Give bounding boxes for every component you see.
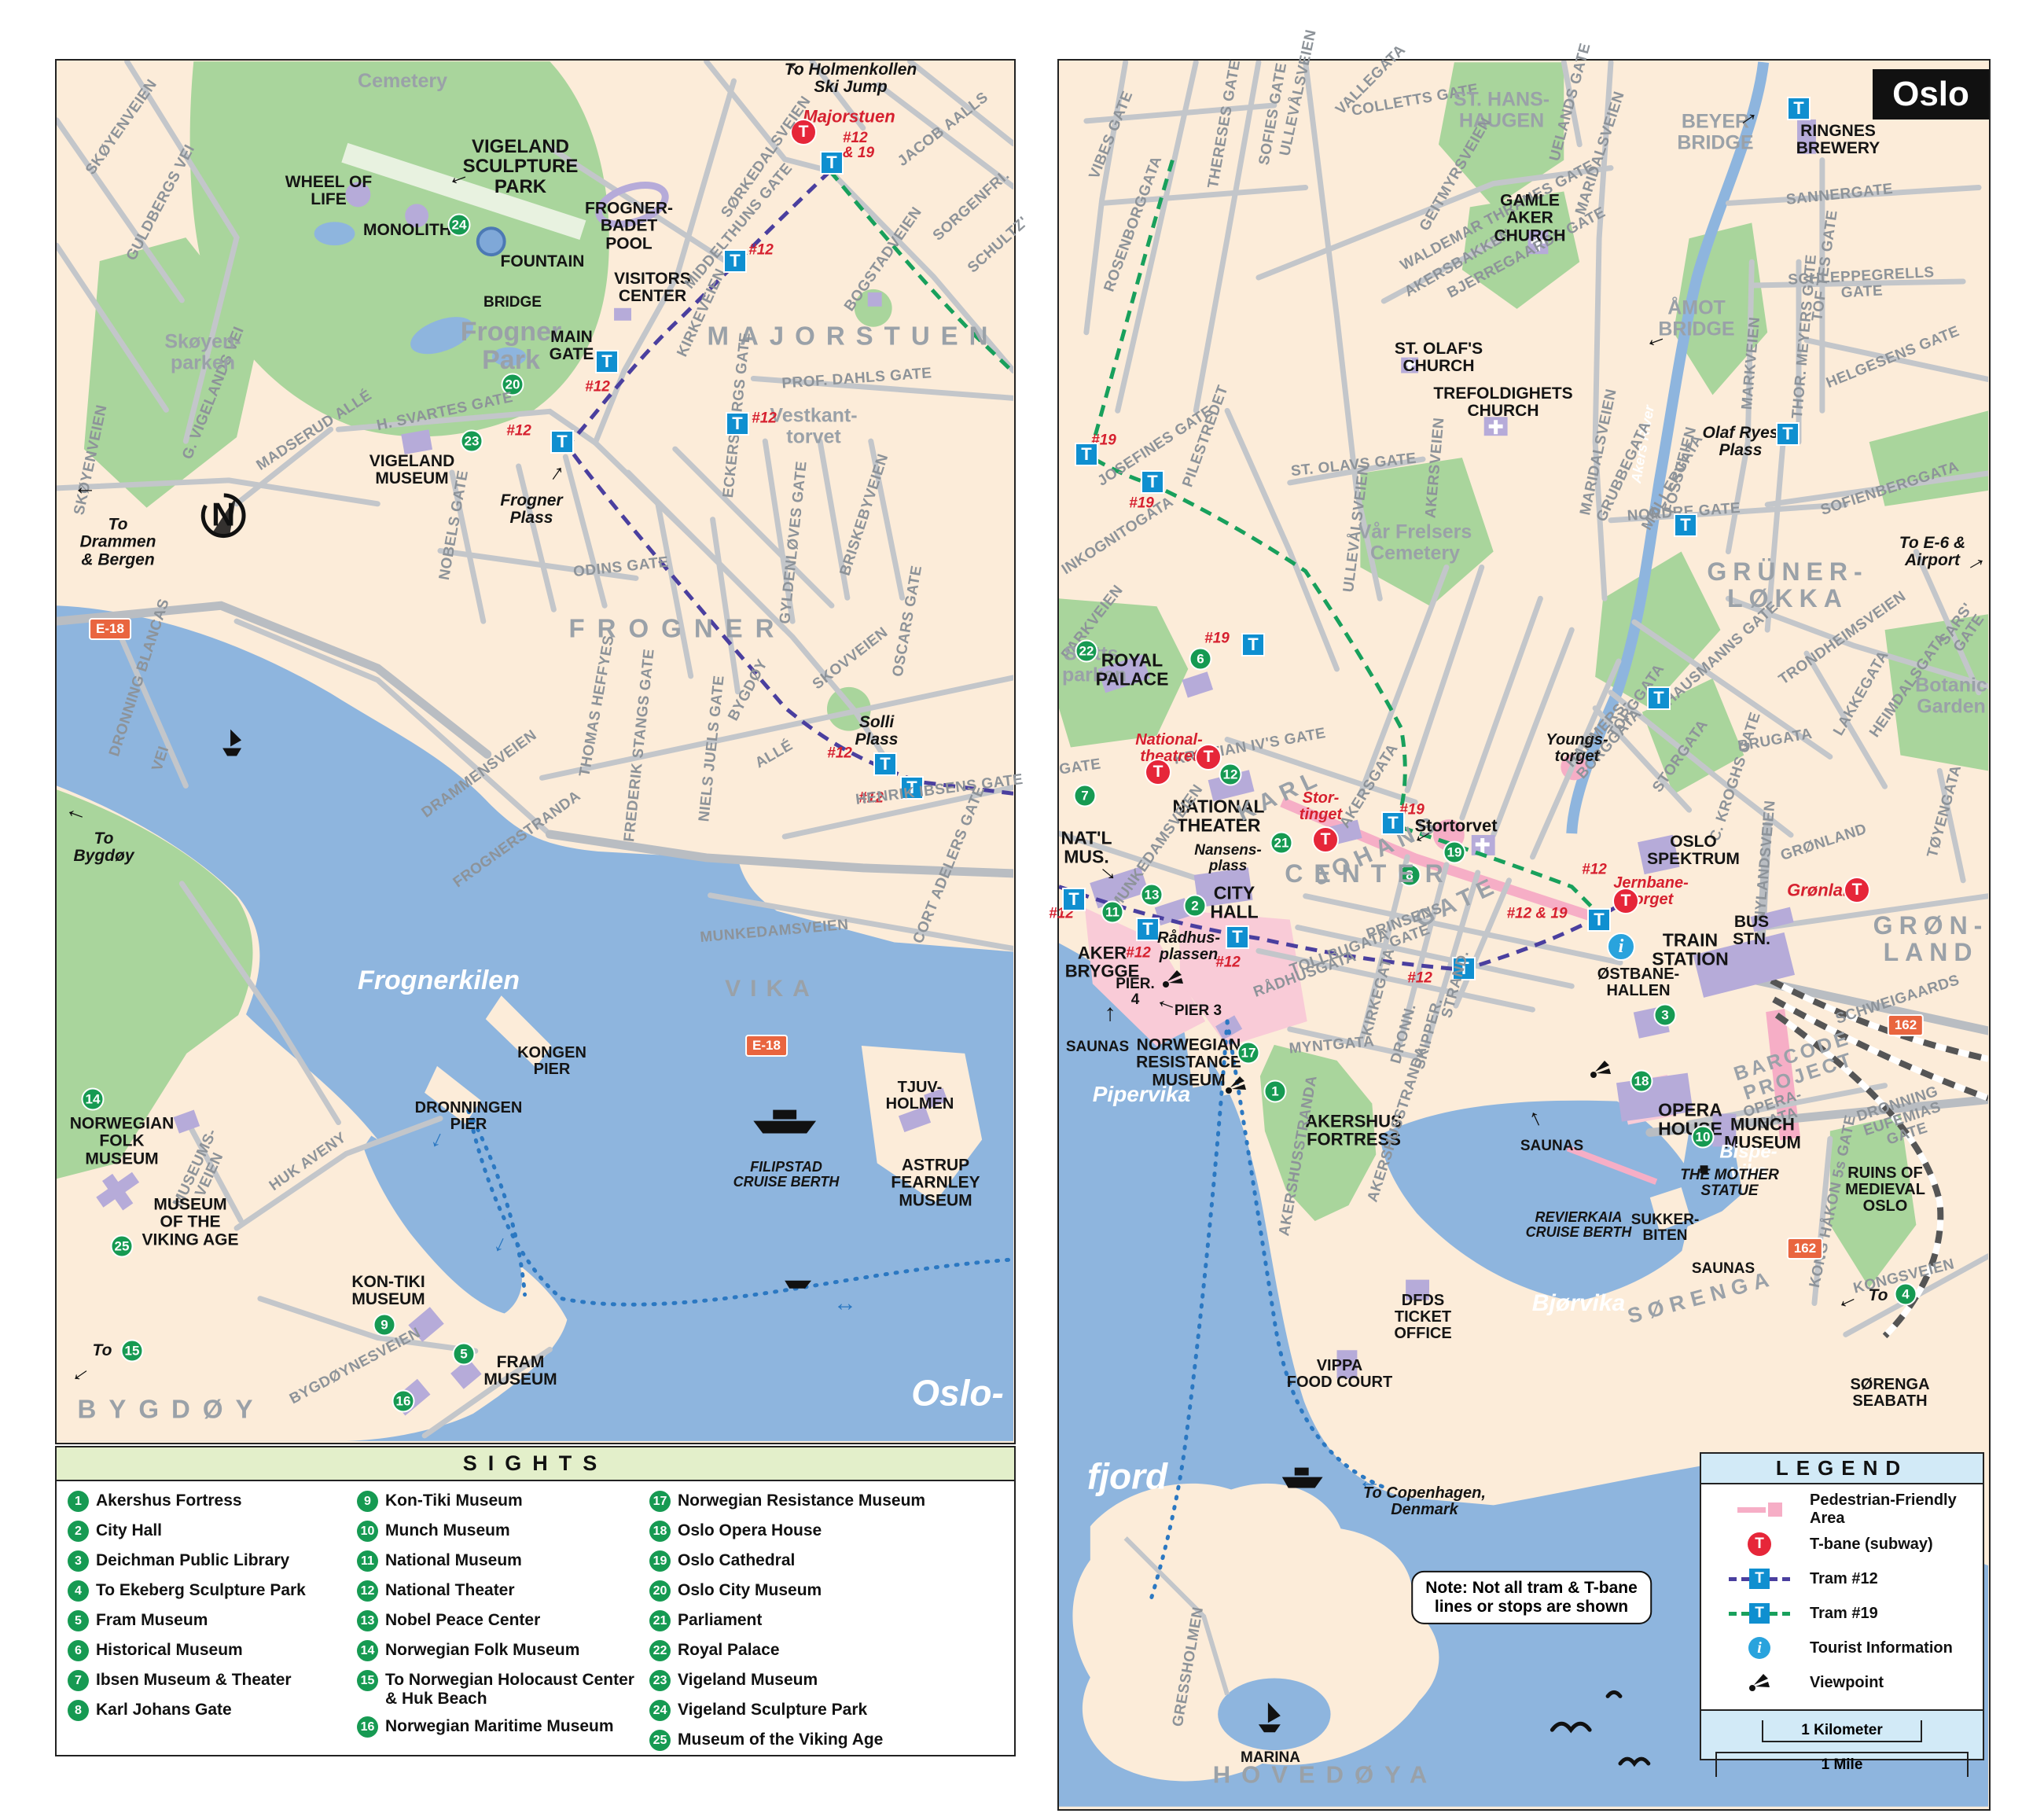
left-map-panel: N — [55, 59, 1016, 1444]
sight-number-badge: 4 — [68, 1580, 89, 1602]
sight-label: Royal Palace — [678, 1640, 780, 1660]
sight-row: 6 Historical Museum — [68, 1640, 357, 1661]
sight-row: 16 Norwegian Maritime Museum — [357, 1716, 649, 1738]
sight-label: Vigeland Museum — [678, 1670, 818, 1690]
sight-row: 2 City Hall — [68, 1521, 357, 1542]
sights-header: SIGHTS — [57, 1447, 1014, 1481]
sight-label: City Hall — [96, 1521, 162, 1540]
legend-header: LEGEND — [1701, 1454, 1983, 1484]
legend-icon: T — [1723, 1532, 1796, 1556]
sight-label: Ibsen Museum & Theater — [96, 1670, 292, 1690]
scale-kilometer: 1 Kilometer — [1762, 1720, 1922, 1742]
sight-label: Parliament — [678, 1610, 762, 1630]
sight-number-badge: 18 — [649, 1521, 671, 1542]
sight-number-badge: 21 — [649, 1610, 671, 1631]
sights-column-3: 17 Norwegian Resistance Museum 18 Oslo O… — [649, 1491, 1003, 1751]
sight-number-badge: 1 — [68, 1491, 89, 1512]
legend-box: LEGEND Pedestrian-Friendly Area T T-bane… — [1700, 1452, 1984, 1760]
sight-label: Oslo City Museum — [678, 1580, 822, 1600]
sight-row: 5 Fram Museum — [68, 1610, 357, 1631]
sight-row: 19 Oslo Cathedral — [649, 1550, 1003, 1572]
sight-row: 24 Vigeland Sculpture Park — [649, 1700, 1003, 1721]
legend-row: Viewpoint — [1701, 1665, 1983, 1700]
sight-row: 1 Akershus Fortress — [68, 1491, 357, 1512]
sight-row: 22 Royal Palace — [649, 1640, 1003, 1661]
sight-number-badge: 12 — [357, 1580, 378, 1602]
sight-label: Akershus Fortress — [96, 1491, 242, 1510]
oslo-tourist-map: N — [0, 0, 2044, 1817]
sight-number-badge: 3 — [68, 1550, 89, 1572]
sight-row: 8 Karl Johans Gate — [68, 1700, 357, 1721]
legend-icon: i — [1723, 1637, 1796, 1659]
sight-number-badge: 6 — [68, 1640, 89, 1661]
sight-number-badge: 25 — [649, 1730, 671, 1751]
sight-number-badge: 10 — [357, 1521, 378, 1542]
sight-number-badge: 2 — [68, 1521, 89, 1542]
sight-label: Munch Museum — [385, 1521, 510, 1540]
sight-row: 11 National Museum — [357, 1550, 649, 1572]
sight-number-badge: 11 — [357, 1550, 378, 1572]
sight-row: 17 Norwegian Resistance Museum — [649, 1491, 1003, 1512]
legend-row: T T-bane (subway) — [1701, 1527, 1983, 1561]
sight-row: 25 Museum of the Viking Age — [649, 1730, 1003, 1751]
legend-row: Pedestrian-Friendly Area — [1701, 1492, 1983, 1527]
sight-label: National Theater — [385, 1580, 515, 1600]
sights-column-2: 9 Kon-Tiki Museum 10 Munch Museum 11 Nat… — [357, 1491, 649, 1751]
sight-label: Nobel Peace Center — [385, 1610, 540, 1630]
sight-label: Oslo Opera House — [678, 1521, 822, 1540]
sight-label: Fram Museum — [96, 1610, 208, 1630]
sight-label: National Museum — [385, 1550, 522, 1570]
sights-column-1: 1 Akershus Fortress 2 City Hall 3 Deichm… — [68, 1491, 357, 1751]
sight-number-badge: 15 — [357, 1670, 378, 1691]
sight-label: Karl Johans Gate — [96, 1700, 232, 1720]
sight-number-badge: 23 — [649, 1670, 671, 1691]
sight-row: 21 Parliament — [649, 1610, 1003, 1631]
legend-icon: T — [1723, 1603, 1796, 1624]
map-title-text: Oslo — [1892, 75, 1969, 114]
scale-mile: 1 Mile — [1715, 1752, 1969, 1777]
legend-icon — [1723, 1672, 1796, 1693]
sight-number-badge: 20 — [649, 1580, 671, 1602]
legend-scale: 1 Kilometer 1 Mile — [1701, 1711, 1983, 1777]
sight-label: To Ekeberg Sculpture Park — [96, 1580, 306, 1600]
sight-number-badge: 14 — [357, 1640, 378, 1661]
sight-row: 20 Oslo City Museum — [649, 1580, 1003, 1602]
legend-row: T Tram #12 — [1701, 1561, 1983, 1596]
sight-label: Norwegian Folk Museum — [385, 1640, 579, 1660]
legend-label: Pedestrian-Friendly Area — [1810, 1491, 1983, 1528]
sight-number-badge: 19 — [649, 1550, 671, 1572]
left-map-graphics: N — [57, 61, 1013, 1442]
legend-label: Tourist Information — [1810, 1639, 1953, 1657]
sight-number-badge: 16 — [357, 1716, 378, 1738]
sight-row: 23 Vigeland Museum — [649, 1670, 1003, 1691]
sight-label: Oslo Cathedral — [678, 1550, 795, 1570]
sight-number-badge: 24 — [649, 1700, 671, 1721]
sight-row: 4 To Ekeberg Sculpture Park — [68, 1580, 357, 1602]
sight-number-badge: 17 — [649, 1491, 671, 1512]
map-title: Oslo — [1873, 69, 1989, 120]
sight-row: 7 Ibsen Museum & Theater — [68, 1670, 357, 1691]
sight-row: 13 Nobel Peace Center — [357, 1610, 649, 1631]
legend-label: Tram #19 — [1810, 1605, 1878, 1623]
sight-number-badge: 7 — [68, 1670, 89, 1691]
sight-label: Kon-Tiki Museum — [385, 1491, 523, 1510]
legend-label: Viewpoint — [1810, 1674, 1884, 1692]
sight-number-badge: 5 — [68, 1610, 89, 1631]
legend-icon: T — [1723, 1569, 1796, 1589]
sight-label: To Norwegian Holocaust Center & Huk Beac… — [385, 1670, 649, 1708]
sight-row: 15 To Norwegian Holocaust Center & Huk B… — [357, 1670, 649, 1708]
sight-number-badge: 8 — [68, 1700, 89, 1721]
sights-panel: SIGHTS 1 Akershus Fortress 2 City Hall 3… — [55, 1446, 1016, 1756]
legend-row: i Tourist Information — [1701, 1631, 1983, 1665]
sight-label: Vigeland Sculpture Park — [678, 1700, 867, 1720]
sight-row: 14 Norwegian Folk Museum — [357, 1640, 649, 1661]
sight-label: Norwegian Resistance Museum — [678, 1491, 925, 1510]
legend-row: T Tram #19 — [1701, 1596, 1983, 1631]
sights-list: 1 Akershus Fortress 2 City Hall 3 Deichm… — [57, 1481, 1014, 1751]
legend-items: Pedestrian-Friendly Area T T-bane (subwa… — [1701, 1484, 1983, 1711]
legend-icon — [1723, 1503, 1796, 1517]
sight-row: 10 Munch Museum — [357, 1521, 649, 1542]
sight-label: Deichman Public Library — [96, 1550, 289, 1570]
sight-row: 18 Oslo Opera House — [649, 1521, 1003, 1542]
sight-label: Norwegian Maritime Museum — [385, 1716, 614, 1736]
sight-row: 12 National Theater — [357, 1580, 649, 1602]
sight-number-badge: 22 — [649, 1640, 671, 1661]
legend-label: Tram #12 — [1810, 1570, 1878, 1588]
sight-label: Museum of the Viking Age — [678, 1730, 883, 1749]
sight-label: Historical Museum — [96, 1640, 243, 1660]
legend-label: T-bane (subway) — [1810, 1536, 1933, 1554]
sight-row: 3 Deichman Public Library — [68, 1550, 357, 1572]
sight-row: 9 Kon-Tiki Museum — [357, 1491, 649, 1512]
sight-number-badge: 13 — [357, 1610, 378, 1631]
sight-number-badge: 9 — [357, 1491, 378, 1512]
